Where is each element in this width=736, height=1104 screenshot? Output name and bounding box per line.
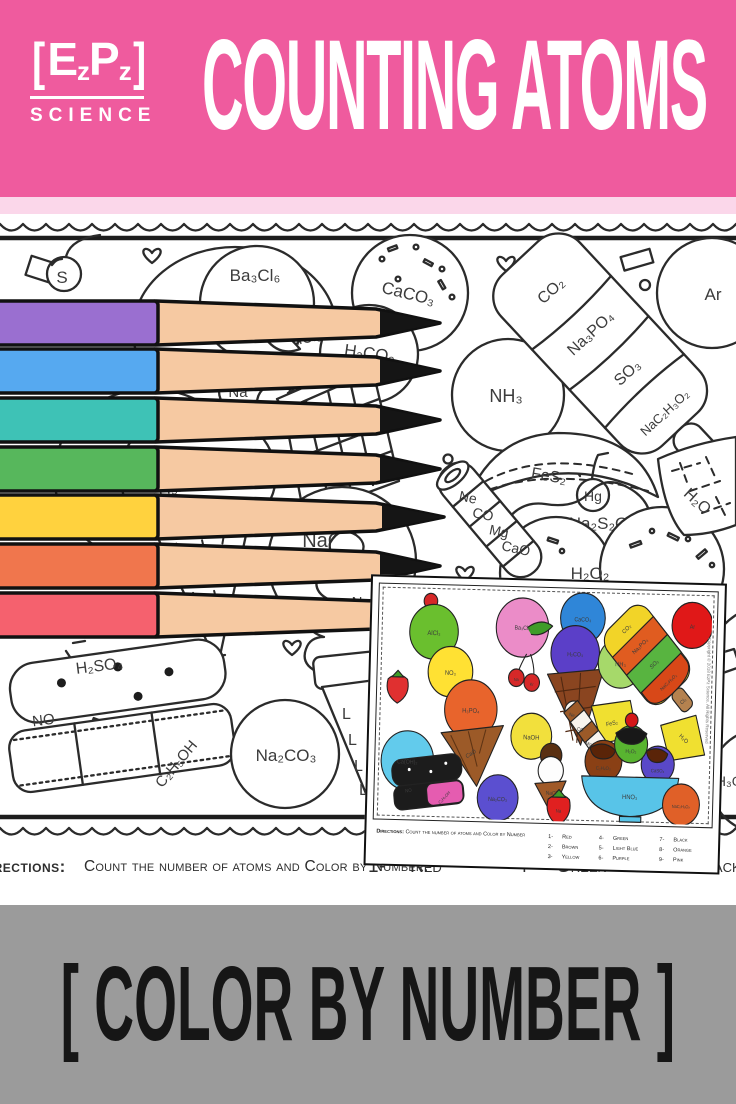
- inset-directions: Directions: Count the number of atoms an…: [376, 825, 549, 863]
- cherry-s: S: [47, 235, 100, 291]
- formula-ar: Ar: [705, 285, 722, 304]
- circle-na2co3: Na₂CO₃: [231, 700, 339, 808]
- svg-text:NH₃: NH₃: [615, 661, 626, 669]
- logo-bracket-open: [: [32, 36, 45, 88]
- logo-divider: [30, 96, 144, 99]
- logo-subtitle: SCIENCE: [30, 105, 160, 127]
- ezpz-science-logo: [ E z P z ] SCIENCE: [30, 36, 160, 127]
- inset-key-num: 2-: [548, 842, 562, 852]
- svg-text:Na: Na: [556, 808, 562, 813]
- inset-key-num: 4-: [599, 833, 613, 843]
- pencil-purple: [0, 301, 440, 345]
- inset-key-color: Purple: [612, 854, 629, 864]
- formula-na2co3: Na₂CO₃: [256, 746, 317, 765]
- inset-key-num: 6-: [598, 853, 612, 863]
- formula-nh3: NH₃: [489, 386, 522, 406]
- inset-mini-art: AlCl₃ NO₃ H₃PO₄ CaO Ba₃Cl₆ Na Kr Ca(OH)₂…: [377, 587, 713, 826]
- svg-text:Na: Na: [514, 677, 520, 682]
- svg-text:C₂H₄O₂: C₂H₄O₂: [596, 765, 611, 771]
- logo-bracket-close: ]: [133, 36, 146, 88]
- pencil-blue: [0, 349, 440, 393]
- pencil-teal: [0, 398, 440, 442]
- formula-s: S: [56, 268, 67, 287]
- svg-text:NaCl: NaCl: [546, 790, 557, 797]
- top-scallop-border: [0, 224, 736, 231]
- answer-key-inset: AlCl₃ NO₃ H₃PO₄ CaO Ba₃Cl₆ Na Kr Ca(OH)₂…: [363, 574, 726, 874]
- svg-text:NaC₂H₃O₂: NaC₂H₃O₂: [672, 804, 691, 810]
- logo-letter-p: P: [89, 36, 119, 82]
- inset-key-num: 1-: [548, 832, 562, 842]
- circle-ar: Ar: [657, 238, 736, 348]
- svg-text:H₂CO₃: H₂CO₃: [567, 652, 583, 659]
- svg-text:NaOH: NaOH: [523, 734, 539, 742]
- header-banner: [ E z P z ] SCIENCE COUNTING ATOMS: [0, 0, 736, 197]
- svg-text:Kr: Kr: [530, 682, 535, 687]
- svg-text:CaCO₃: CaCO₃: [574, 617, 591, 624]
- svg-text:NO: NO: [405, 788, 412, 794]
- inset-key-color: Yellow: [562, 852, 580, 862]
- inset-key-num: 7-: [659, 835, 673, 845]
- inset-key-color: Red: [562, 832, 572, 842]
- svg-text:H₂O₂: H₂O₂: [625, 749, 636, 756]
- inset-key-num: 8-: [659, 845, 673, 855]
- inset-key-color: Green: [613, 834, 629, 844]
- inset-key-color: Light Blue: [613, 844, 639, 855]
- pencil-yellow: [0, 495, 444, 539]
- svg-text:HNO₃: HNO₃: [622, 794, 638, 802]
- logo-sub-z2: z: [119, 58, 131, 84]
- inset-directions-text: Count the number of atoms and Color by N…: [405, 829, 525, 838]
- formula-no: NO: [31, 711, 55, 731]
- pin-image: [ E z P z ] SCIENCE COUNTING ATOMS: [0, 0, 736, 1104]
- inset-key-col-3: 7-Black 8-Orange 9-Pink: [659, 832, 711, 867]
- svg-text:NO₃: NO₃: [445, 670, 457, 678]
- inset-key-color: Black: [673, 835, 687, 845]
- svg-text:Ca(OH)₂: Ca(OH)₂: [397, 759, 418, 766]
- inset-key-num: 3-: [548, 852, 562, 862]
- inset-frame: AlCl₃ NO₃ H₃PO₄ CaO Ba₃Cl₆ Na Kr Ca(OH)₂…: [373, 583, 719, 829]
- inset-key-color: Pink: [673, 855, 684, 865]
- page-title: COUNTING ATOMS: [202, 22, 707, 150]
- inset-key-color: Brown: [562, 842, 579, 852]
- svg-text:AlCl₃: AlCl₃: [427, 630, 441, 638]
- inset-key-col-1: 1-Red 2-Brown 3-Yellow: [547, 829, 599, 864]
- svg-text:Ba₃Cl₆: Ba₃Cl₆: [514, 625, 530, 632]
- inset-key-color: Orange: [673, 845, 692, 855]
- svg-text:Ar: Ar: [690, 624, 696, 630]
- inset-key-num: 9-: [659, 855, 673, 865]
- svg-text:CaSO₄: CaSO₄: [651, 768, 665, 774]
- logo-sub-z1: z: [77, 58, 89, 84]
- pencil-green: [0, 447, 440, 491]
- sandwich: H₂SO₄ NO C₂H₅OH: [7, 636, 238, 794]
- directions-label: Directions:: [0, 857, 66, 877]
- svg-text:Na₂CO₃: Na₂CO₃: [488, 797, 507, 804]
- svg-text:H₃PO₄: H₃PO₄: [462, 707, 480, 715]
- logo-letter-e: E: [47, 36, 77, 82]
- inset-key-col-2: 4-Green 5-Light Blue 6-Purple: [598, 830, 659, 866]
- footer-title: [ COLOR BY NUMBER ]: [61, 944, 675, 1065]
- footer-banner: [ COLOR BY NUMBER ]: [0, 905, 736, 1104]
- inset-directions-label: Directions:: [376, 829, 404, 836]
- inset-key-num: 5-: [599, 843, 613, 853]
- inset-directions-key: Directions: Count the number of atoms an…: [376, 825, 711, 868]
- header-accent-strip: [0, 197, 736, 214]
- formula-ba3cl6: Ba₃Cl₆: [230, 266, 281, 285]
